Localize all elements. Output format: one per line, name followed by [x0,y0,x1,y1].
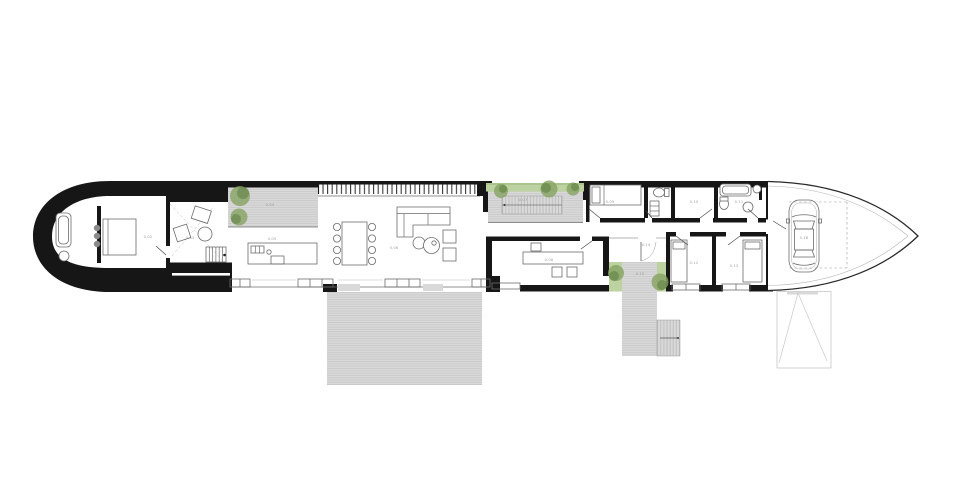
room-label: 0.06 [390,246,399,250]
room-label: 0.05 [268,237,277,241]
wall-reveal [172,273,230,276]
bed-2 [590,185,641,205]
armchair [443,248,456,261]
room-label: 0.10 [690,200,699,204]
carport-bow [768,182,918,369]
dining-set [333,222,375,265]
living-furniture [397,207,456,261]
bed-3 [671,240,687,282]
basin [753,185,761,193]
room-label: 0.13 [730,264,739,268]
desk-chair [552,267,562,277]
room-label: 0.12 [690,261,699,265]
tree [567,183,580,196]
tree [231,209,248,226]
louver-screen [319,185,478,195]
entry-stair [657,320,680,356]
tree [652,274,669,291]
tree [494,184,508,198]
entry-path [622,292,657,357]
wc-fixtures [650,188,669,216]
desk-chair [567,267,577,277]
stool [59,251,69,261]
floor-plan-drawing: 0.02 0.03 0.04 0.05 0.06 0.07 0.08 0.09 … [0,0,960,480]
tree [541,181,558,198]
desk-chair [531,243,541,251]
sofa [397,207,450,237]
room-label: 0.07 [519,198,528,202]
room-label: 0.03 [186,236,195,240]
room-label: 0.09 [606,200,615,204]
coffee-table-2 [424,238,440,254]
room-label: 0.16 [800,236,809,240]
bed-4 [743,240,762,282]
round-chair [198,227,212,241]
kitchen-island [248,243,317,264]
room-label: 0.15 [636,272,645,276]
room-label: 0.08 [545,258,554,262]
front-door [609,238,666,261]
room-label: 0.04 [266,203,275,207]
basin [743,202,753,212]
coffee-table [413,237,425,249]
room-label: 0.14 [642,243,651,247]
tree [608,265,624,281]
driveway [777,292,831,369]
room-label: 0.02 [144,235,153,239]
tree [230,186,250,206]
room-label: 0.11 [735,200,744,204]
floor-plan-canvas: 0.02 0.03 0.04 0.05 0.06 0.07 0.08 0.09 … [0,0,960,480]
armchair [443,230,456,243]
bathroom2-fixtures [720,184,762,212]
deck-south [327,292,482,385]
court-stair [502,196,562,214]
bow-outline [768,182,918,291]
